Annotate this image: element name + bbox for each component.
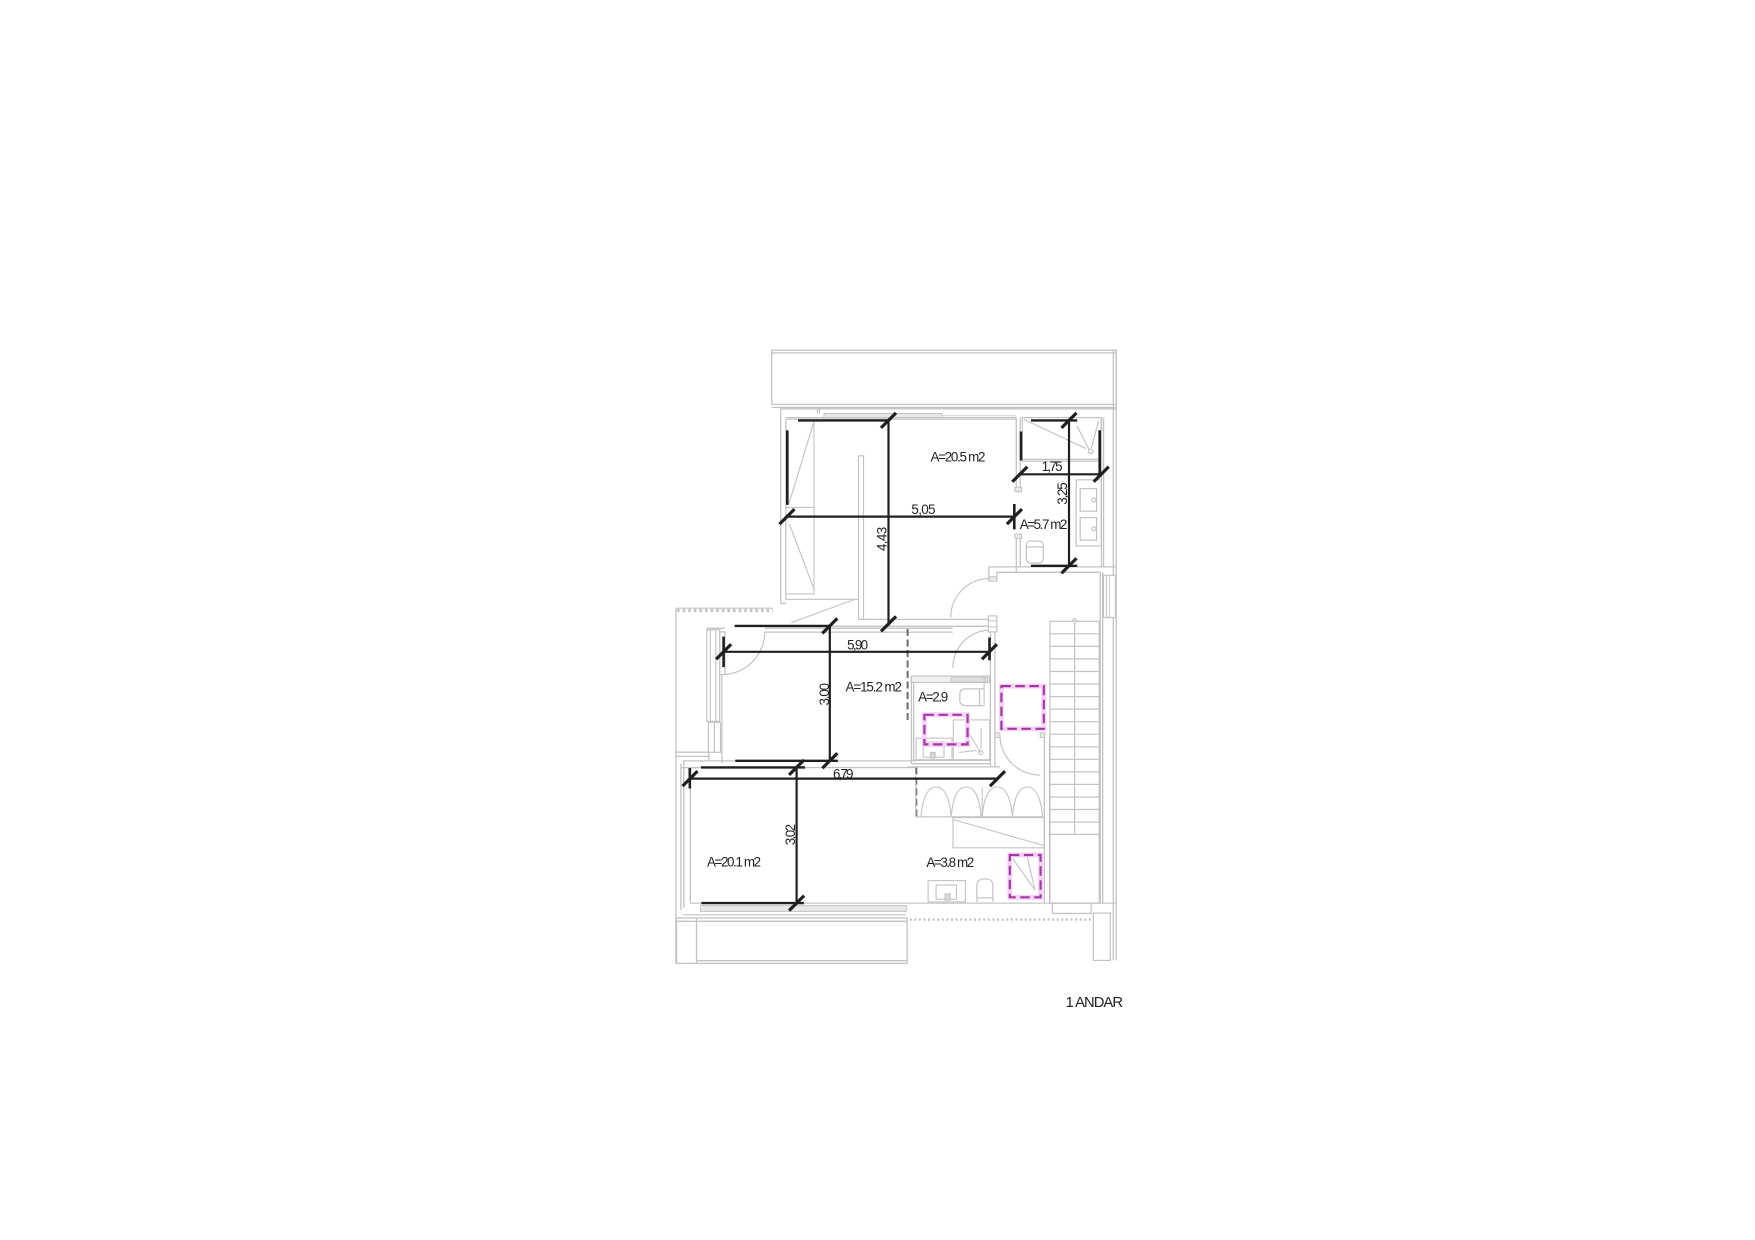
svg-text:4,43: 4,43 [875, 527, 890, 551]
svg-text:5,05: 5,05 [911, 502, 935, 517]
svg-text:A=5.7 m2: A=5.7 m2 [1020, 517, 1068, 532]
svg-text:A=3.8 m2: A=3.8 m2 [926, 855, 974, 870]
svg-text:A=20.1 m2: A=20.1 m2 [707, 855, 761, 870]
svg-text:A=2.9: A=2.9 [918, 690, 948, 705]
svg-text:1,75: 1,75 [1042, 459, 1063, 474]
svg-text:5,90: 5,90 [847, 638, 868, 653]
svg-text:3,25: 3,25 [1055, 482, 1070, 505]
svg-text:A=20.5 m2: A=20.5 m2 [931, 449, 986, 464]
svg-text:1 ANDAR: 1 ANDAR [1066, 995, 1123, 1011]
svg-text:3,00: 3,00 [817, 683, 832, 706]
svg-text:6,79: 6,79 [833, 766, 853, 781]
svg-text:A=15.2 m2: A=15.2 m2 [846, 680, 902, 695]
svg-text:3,02: 3,02 [783, 824, 798, 845]
